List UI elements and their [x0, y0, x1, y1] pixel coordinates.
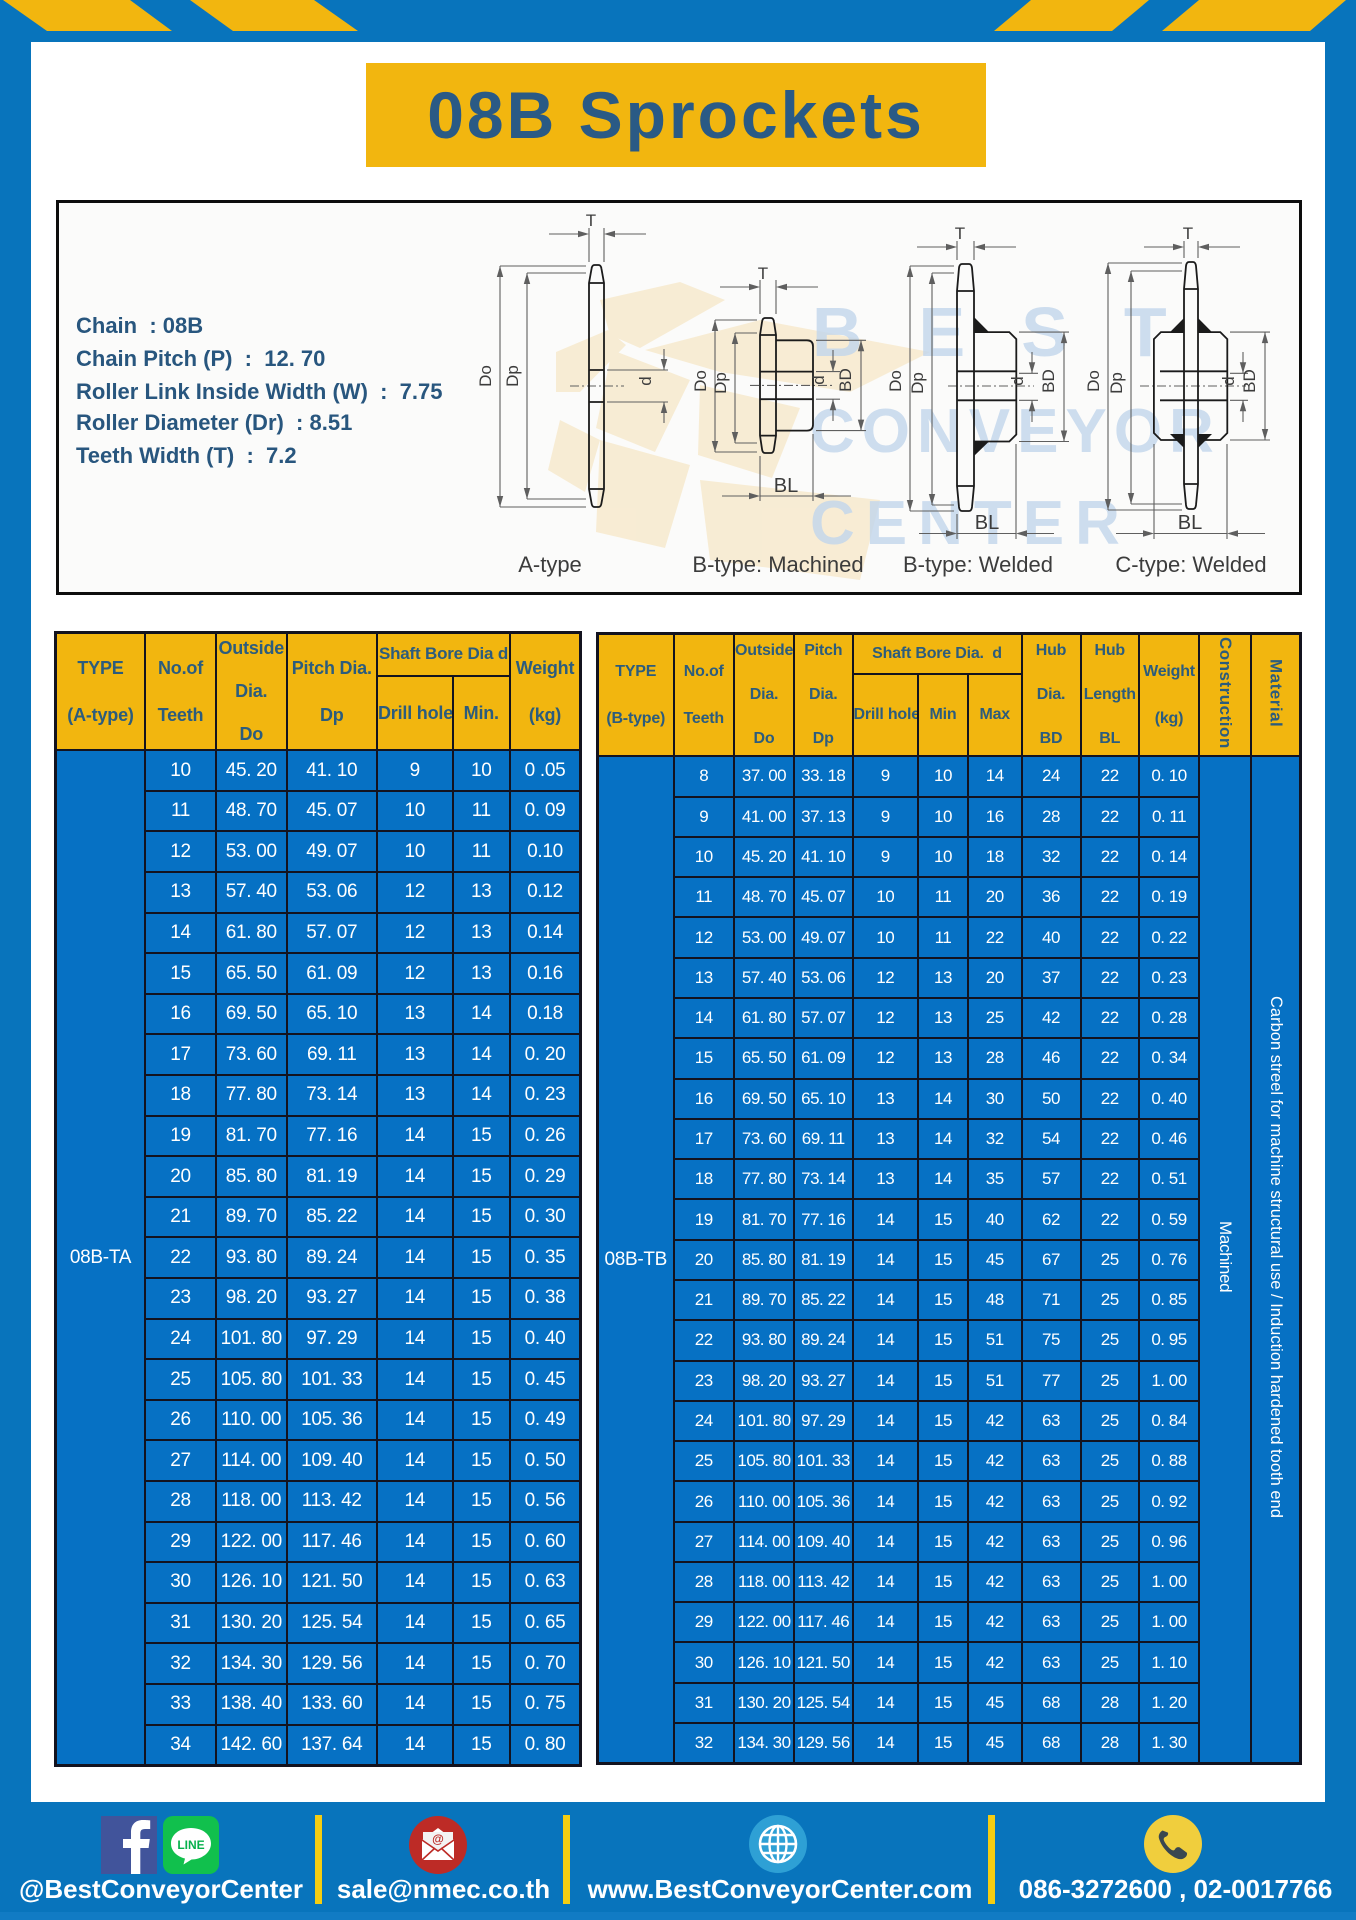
svg-text:d: d: [1008, 376, 1027, 385]
svg-text:BD: BD: [1039, 369, 1058, 393]
svg-text:BL: BL: [975, 512, 999, 534]
svg-text:Dp: Dp: [711, 372, 730, 394]
svg-text:d: d: [1219, 376, 1238, 385]
svg-text:T: T: [1183, 224, 1193, 243]
svg-text:B-type: Machined: B-type: Machined: [692, 552, 863, 577]
svg-text:BL: BL: [774, 475, 798, 497]
svg-text:Do: Do: [691, 370, 710, 392]
svg-text:@: @: [432, 1832, 444, 1846]
svg-text:C-type: Welded: C-type: Welded: [1115, 552, 1266, 577]
svg-text:Dp: Dp: [908, 372, 927, 394]
svg-text:BL: BL: [1178, 512, 1202, 534]
svg-text:Dp: Dp: [1107, 372, 1126, 394]
svg-text:T: T: [955, 224, 965, 243]
svg-text:T: T: [586, 211, 596, 230]
svg-text:Do: Do: [1084, 370, 1103, 392]
svg-text:Do: Do: [886, 370, 905, 392]
svg-text:BD: BD: [836, 368, 855, 392]
svg-text:T: T: [758, 264, 768, 283]
svg-text:CENTER: CENTER: [810, 489, 1131, 558]
svg-text:LINE: LINE: [177, 1838, 204, 1852]
svg-text:B-type: Welded: B-type: Welded: [903, 552, 1053, 577]
svg-text:A-type: A-type: [518, 552, 582, 577]
svg-text:BD: BD: [1240, 369, 1259, 393]
svg-text:d: d: [809, 375, 828, 384]
